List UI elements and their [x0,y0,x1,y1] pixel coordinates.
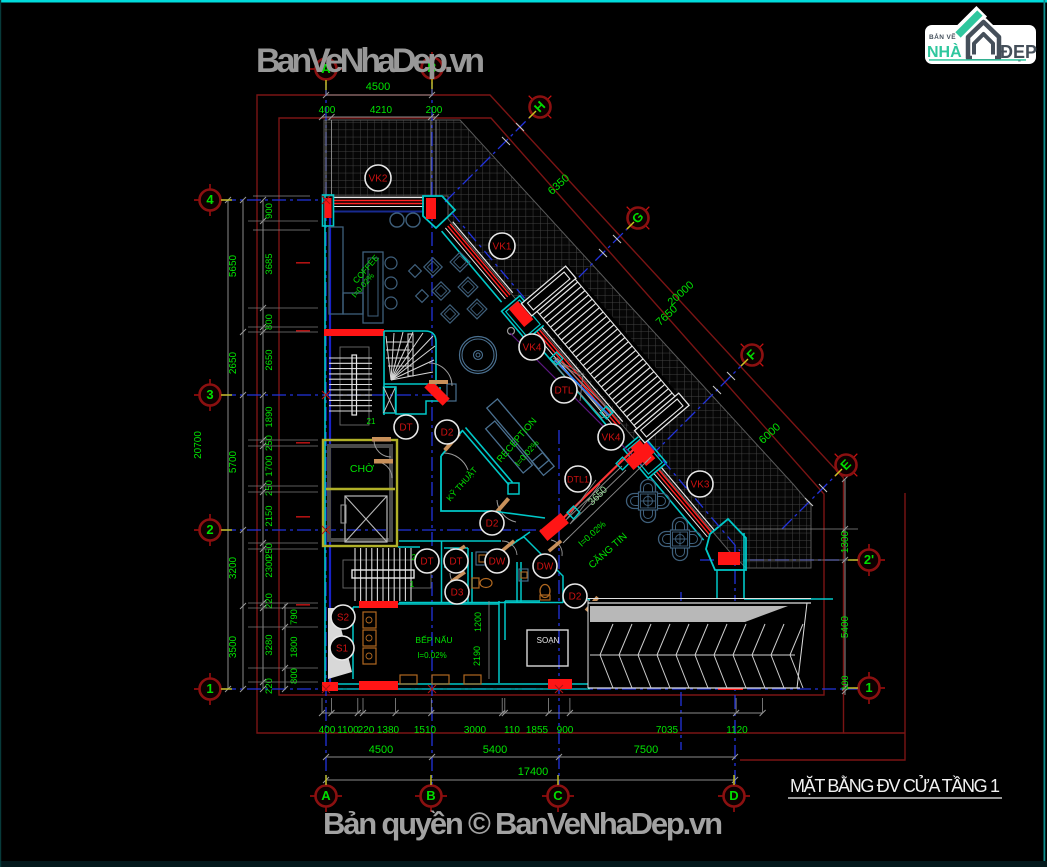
svg-text:S1: S1 [336,644,349,655]
svg-text:CHỜ: CHỜ [350,462,374,475]
svg-text:C: C [553,788,563,803]
svg-text:2: 2 [206,522,213,537]
svg-text:900: 900 [264,203,275,219]
svg-text:3500: 3500 [228,635,239,658]
svg-text:1100: 1100 [337,725,359,736]
svg-text:1800: 1800 [289,636,300,657]
svg-text:D2: D2 [569,592,582,603]
svg-text:2190: 2190 [472,646,482,666]
svg-text:S2: S2 [337,613,350,624]
svg-text:2650: 2650 [264,349,275,370]
svg-text:3200: 3200 [228,556,239,579]
svg-text:DT: DT [420,557,433,568]
svg-text:110: 110 [504,725,520,736]
svg-text:1: 1 [410,580,415,589]
svg-text:SOẠN: SOẠN [537,636,560,645]
svg-text:D3: D3 [451,588,464,599]
svg-text:A: A [321,788,331,803]
svg-text:1855: 1855 [526,725,549,736]
svg-text:DW: DW [489,557,506,568]
svg-text:ĐẸP: ĐẸP [1000,42,1037,62]
svg-text:DTL: DTL [555,386,574,397]
svg-text:21: 21 [367,417,376,426]
svg-text:VK2: VK2 [369,174,388,185]
svg-text:2': 2' [864,552,874,567]
svg-text:1: 1 [206,681,213,696]
svg-text:790: 790 [289,609,300,625]
svg-text:I=0.02%: I=0.02% [417,651,447,660]
svg-text:400: 400 [319,725,336,736]
svg-text:200: 200 [426,105,443,116]
svg-text:3: 3 [206,387,213,402]
svg-text:1700: 1700 [264,455,275,476]
svg-text:1300: 1300 [840,530,851,553]
svg-text:1: 1 [865,680,872,695]
svg-text:20700: 20700 [193,431,204,459]
svg-text:800: 800 [264,314,275,330]
svg-text:D2: D2 [486,519,499,530]
svg-text:2650: 2650 [228,351,239,374]
svg-text:DTL1: DTL1 [567,475,589,485]
svg-text:7035: 7035 [656,725,679,736]
svg-text:5400: 5400 [483,744,507,756]
svg-text:B: B [426,788,435,803]
svg-text:800: 800 [289,668,300,684]
svg-text:4500: 4500 [366,81,390,93]
svg-text:7500: 7500 [634,744,658,756]
svg-text:4210: 4210 [370,105,393,116]
svg-text:DW: DW [537,562,554,573]
svg-text:VK4: VK4 [523,343,542,354]
svg-text:4: 4 [206,192,214,207]
svg-text:2300: 2300 [264,556,275,577]
svg-text:D: D [729,788,738,803]
svg-text:3000: 3000 [464,725,487,736]
svg-text:BẾP NẤU: BẾP NẤU [415,635,452,645]
svg-text:3685: 3685 [264,253,275,274]
svg-text:17400: 17400 [518,766,549,778]
svg-text:Bản quyền © BanVeNhaDep.vn: Bản quyền © BanVeNhaDep.vn [323,806,723,841]
svg-text:NHÀ: NHÀ [927,42,962,61]
svg-text:BẢN VẼ: BẢN VẼ [929,32,956,41]
svg-text:5650: 5650 [228,254,239,277]
svg-text:250: 250 [264,480,275,496]
svg-text:1890: 1890 [264,406,275,427]
svg-text:900: 900 [557,725,574,736]
svg-text:BanVeNhaDep.vn: BanVeNhaDep.vn [256,42,485,80]
svg-text:3280: 3280 [264,634,275,655]
svg-text:1120: 1120 [726,725,748,736]
svg-text:1510: 1510 [414,725,437,736]
svg-text:220: 220 [358,725,375,736]
svg-text:VK3: VK3 [691,480,710,491]
svg-text:MẶT BẰNG ĐV CỬA TẦNG 1: MẶT BẰNG ĐV CỬA TẦNG 1 [790,775,1000,796]
svg-text:VK1: VK1 [493,242,512,253]
svg-text:DT: DT [399,423,412,434]
svg-text:1200: 1200 [473,612,483,632]
svg-text:400: 400 [319,105,336,116]
svg-text:1380: 1380 [377,725,400,736]
svg-text:5700: 5700 [228,450,239,473]
svg-text:4500: 4500 [369,744,393,756]
svg-text:D2: D2 [441,428,454,439]
svg-text:DT: DT [449,557,462,568]
svg-text:VK4: VK4 [602,433,621,444]
svg-text:2150: 2150 [264,505,275,526]
svg-text:5400: 5400 [840,615,851,638]
